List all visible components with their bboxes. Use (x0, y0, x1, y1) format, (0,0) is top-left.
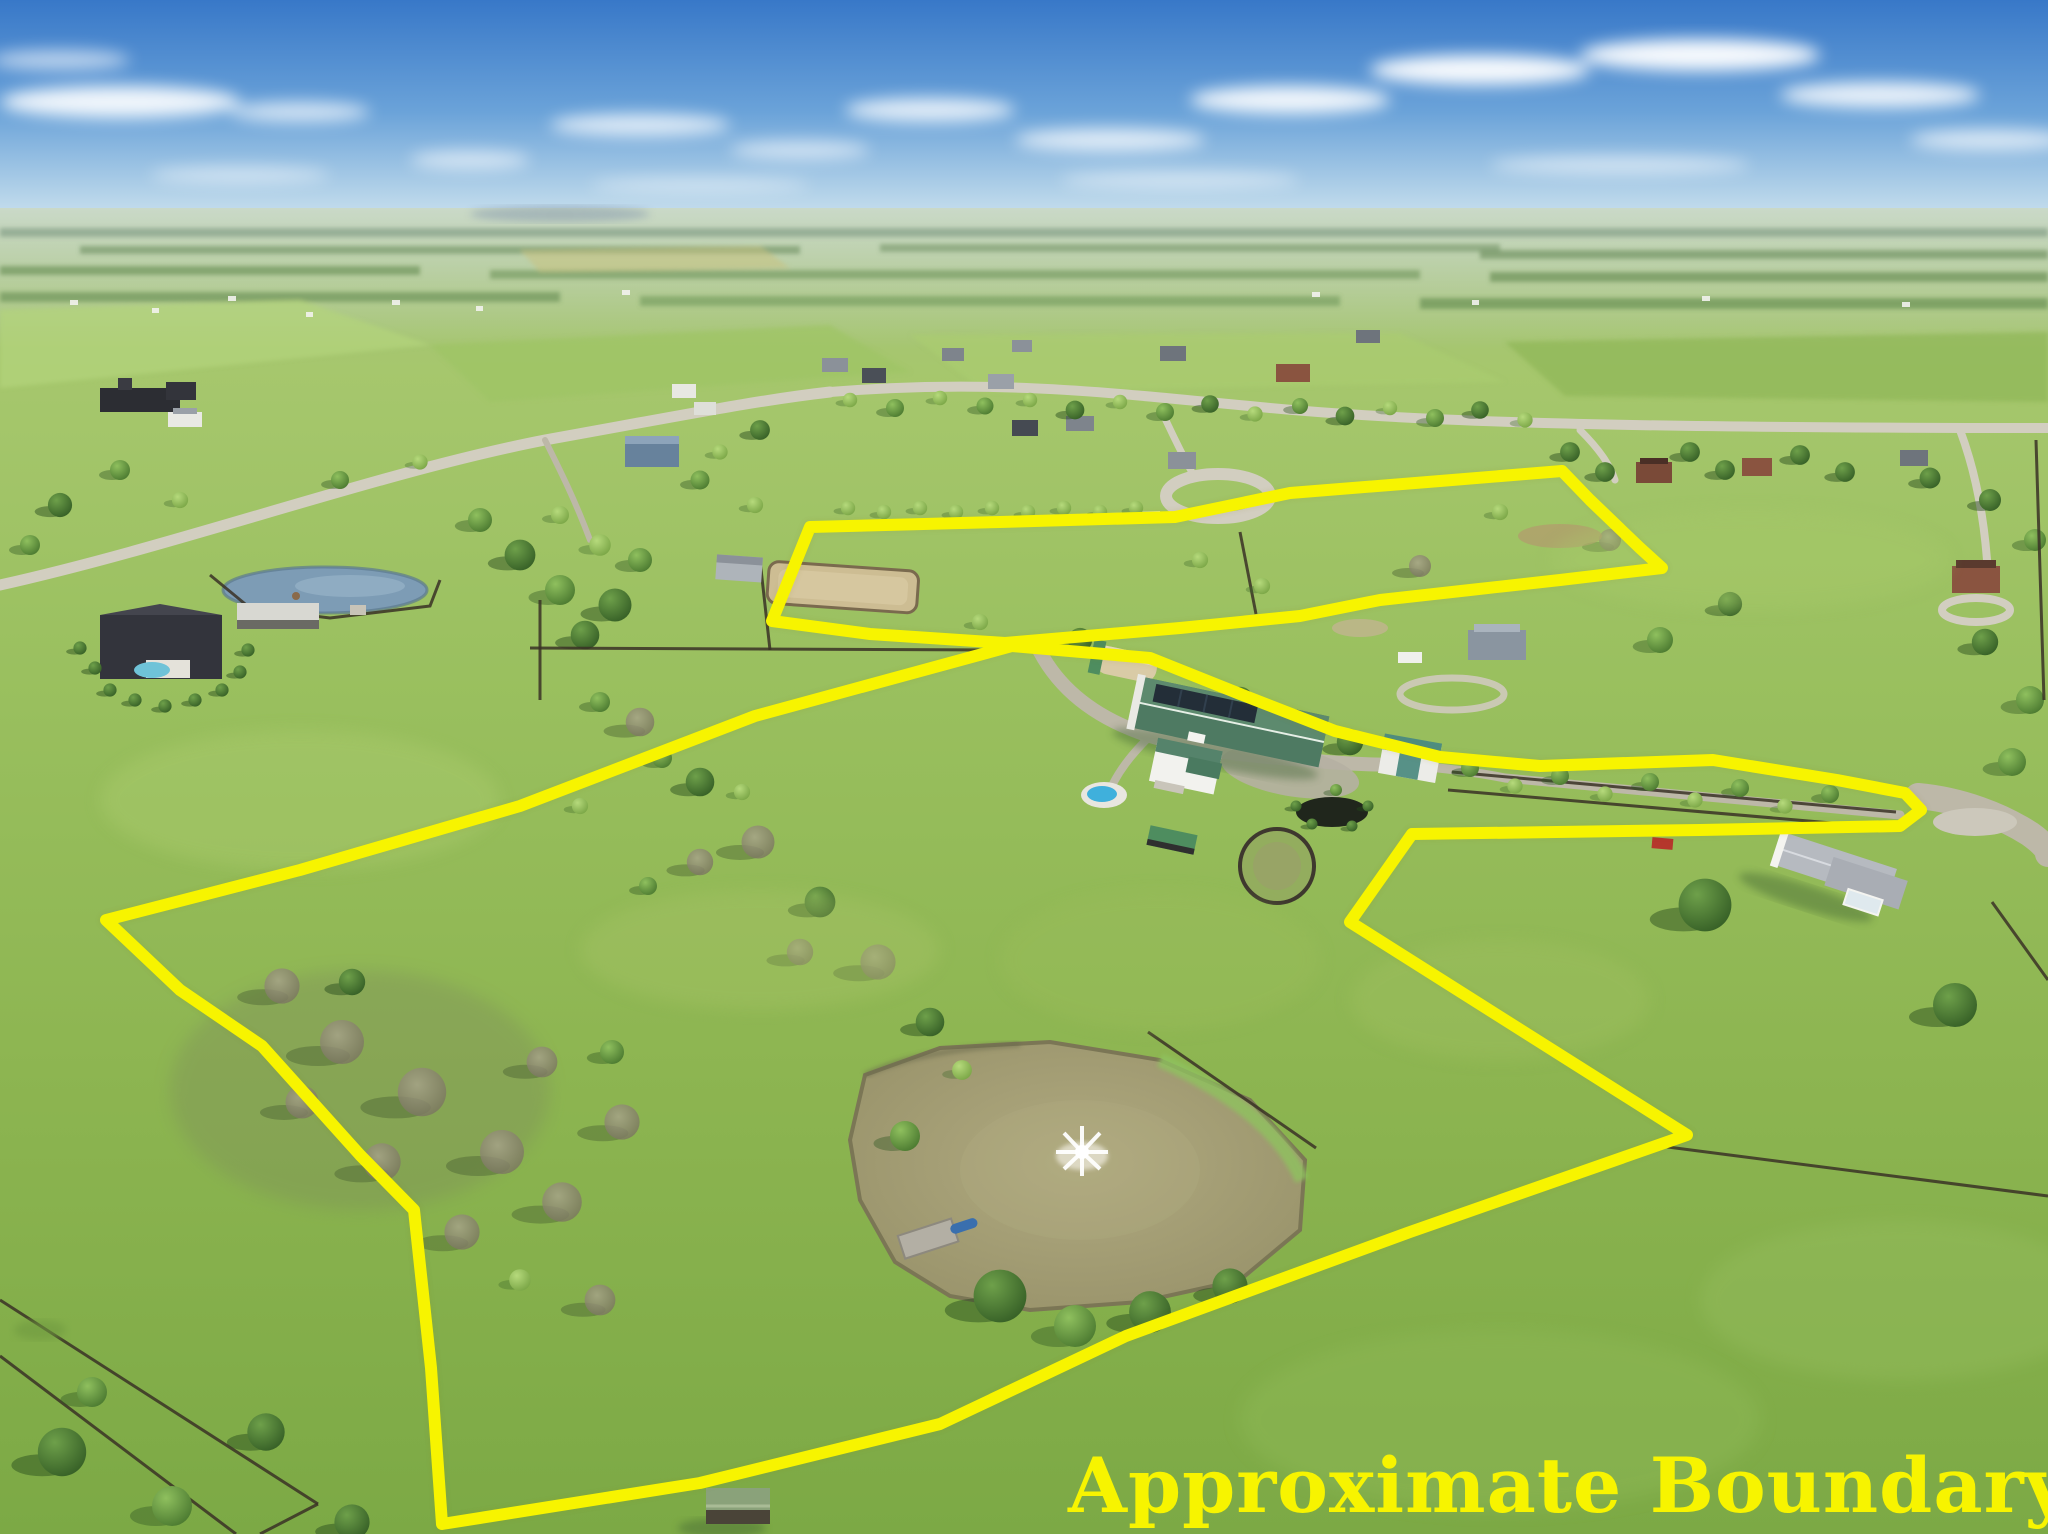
round-pen (1240, 829, 1314, 903)
distant-ridge (470, 206, 650, 222)
red-car (1652, 837, 1674, 850)
pool-area (1081, 782, 1127, 808)
stable-shed (715, 554, 763, 582)
fountain (1056, 1126, 1108, 1176)
boundary-label: Approximate Boundary (1067, 1441, 2048, 1530)
aerial-photo-canvas: Approximate Boundary (0, 0, 2048, 1534)
aerial-photo: Approximate Boundary (0, 0, 2048, 1534)
